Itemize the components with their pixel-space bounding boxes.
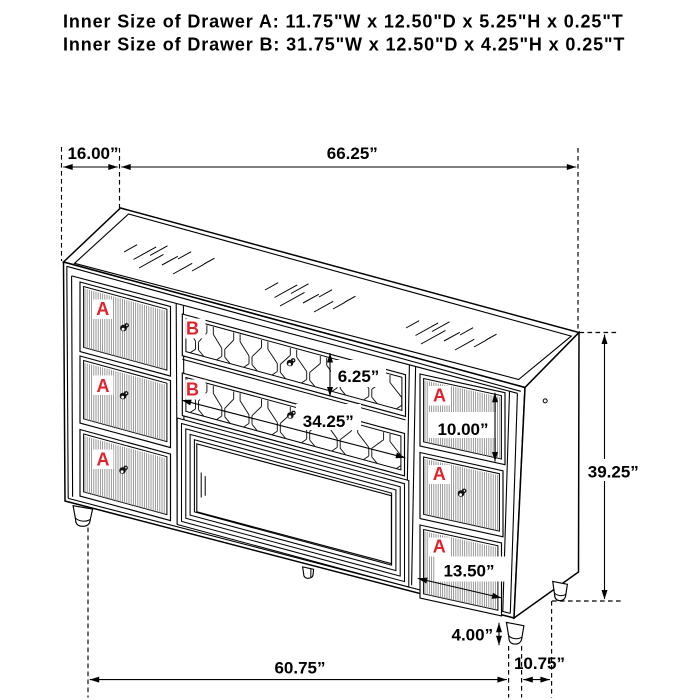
svg-text:66.25”: 66.25” [327,144,378,163]
svg-text:13.50”: 13.50” [443,562,494,581]
svg-text:60.75”: 60.75” [274,658,325,677]
svg-text:A: A [96,299,109,319]
svg-text:Inner Size of Drawer B: 31.75": Inner Size of Drawer B: 31.75"W x 12.50"… [63,34,625,54]
svg-text:A: A [433,537,446,557]
svg-text:4.00”: 4.00” [452,625,494,644]
svg-text:A: A [433,464,446,484]
svg-text:16.00”: 16.00” [67,144,118,163]
svg-text:39.25”: 39.25” [588,463,639,482]
svg-text:10.00”: 10.00” [437,420,488,439]
svg-text:A: A [433,386,446,406]
svg-text:B: B [186,380,199,400]
svg-text:6.25”: 6.25” [338,367,380,386]
svg-text:34.25”: 34.25” [303,412,354,431]
svg-text:B: B [186,318,199,338]
svg-text:10.75”: 10.75” [514,654,565,673]
svg-text:Inner Size of Drawer A: 11.75": Inner Size of Drawer A: 11.75"W x 12.50"… [63,11,624,31]
svg-text:A: A [97,376,110,396]
svg-text:A: A [97,449,110,469]
